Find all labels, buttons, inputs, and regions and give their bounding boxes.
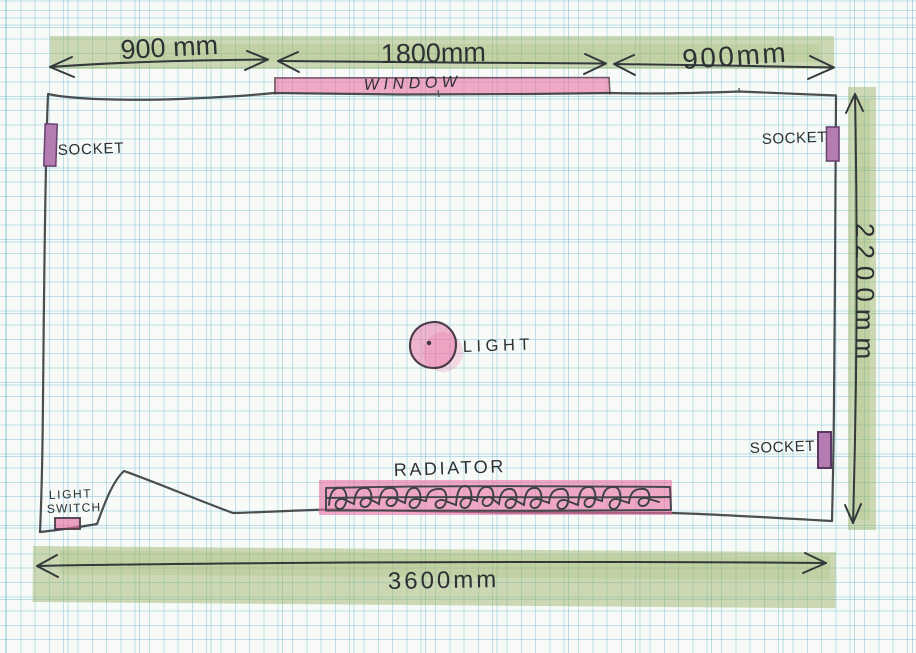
svg-text:SOCKET: SOCKET (58, 140, 125, 159)
svg-text:SWITCH: SWITCH (47, 500, 102, 516)
svg-text:RADIATOR: RADIATOR (393, 456, 506, 480)
svg-text:LIGHT: LIGHT (463, 335, 535, 355)
svg-text:1800mm: 1800mm (381, 37, 487, 69)
svg-text:900 mm: 900 mm (120, 30, 219, 65)
svg-text:3600mm: 3600mm (388, 566, 500, 595)
svg-text:900mm: 900mm (681, 37, 789, 75)
svg-text:2200mm: 2200mm (850, 223, 880, 366)
svg-text:SOCKET: SOCKET (762, 129, 828, 148)
svg-text:SOCKET: SOCKET (750, 438, 816, 457)
svg-text:WINDOW: WINDOW (364, 74, 462, 94)
